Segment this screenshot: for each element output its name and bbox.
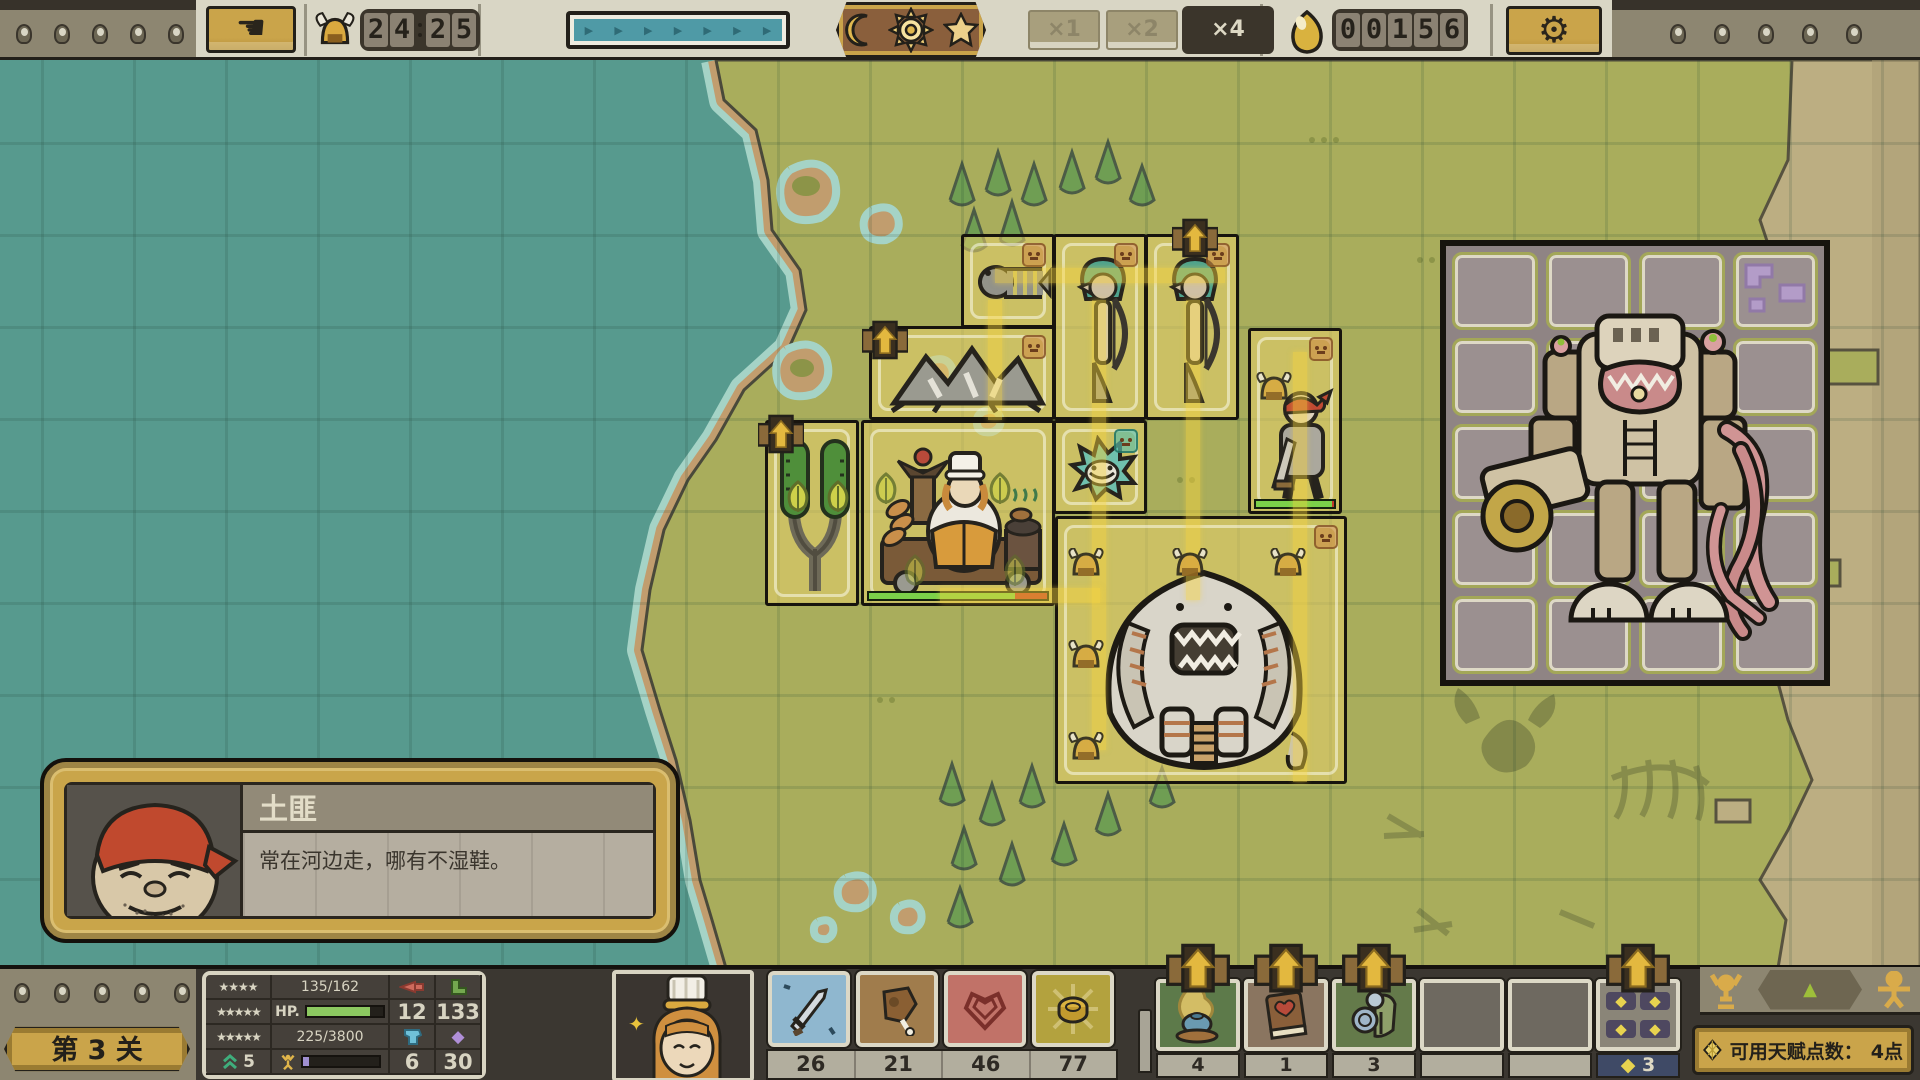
- upgrade-badge-button[interactable]: [1342, 941, 1406, 997]
- dialog-title: 土匪: [243, 785, 653, 833]
- pose-selector[interactable]: ▲: [1758, 970, 1862, 1010]
- resource-count: 77: [1031, 1051, 1117, 1078]
- hp-label: HP.: [275, 1004, 300, 1020]
- helmet-marker-icon: [1268, 548, 1308, 582]
- item-count: [1508, 1053, 1592, 1078]
- star-rating-row2: ★★★★★: [206, 1000, 272, 1025]
- timer-colon: [416, 13, 424, 47]
- helmet-marker-icon: [1170, 548, 1210, 582]
- gold-counter: 0 0 1 5 6: [1332, 9, 1468, 51]
- sword-icon: [782, 982, 836, 1036]
- scrap-mech-unit[interactable]: [1475, 290, 1805, 670]
- top-left-cap: [0, 0, 196, 60]
- heart-icon: [958, 982, 1012, 1036]
- resource-count: 26: [768, 1051, 856, 1078]
- timer-digit: 2: [426, 13, 450, 47]
- resource-count: 46: [943, 1051, 1031, 1078]
- pointer-tool-button[interactable]: ☚: [206, 6, 296, 53]
- wave-progress-bar: ▶▶▶▶▶▶▶: [566, 11, 790, 49]
- sparkle-icon: ✦: [628, 1012, 645, 1036]
- timer-digit: 5: [452, 13, 476, 47]
- resource-heart[interactable]: [944, 971, 1026, 1047]
- item-slot-empty[interactable]: [1420, 979, 1504, 1051]
- upgrade-badge-button[interactable]: [1606, 941, 1670, 997]
- leaf-badge-icon: [983, 470, 1017, 508]
- moon-icon: [843, 12, 879, 48]
- figure-arms-up-icon: [1706, 971, 1746, 1009]
- talent-points-label: 可用天赋点数：: [1730, 1037, 1863, 1064]
- gem-icon: ◆: [436, 1025, 482, 1050]
- xp-meter: [301, 1055, 381, 1068]
- item-count-diamond: ◆ 3: [1596, 1053, 1680, 1078]
- meat-icon: [870, 982, 924, 1036]
- hand-pointer-icon: ☚: [236, 8, 266, 48]
- upgrade-arrow-badge: [758, 412, 804, 456]
- pose-emblem-band: ▲: [1700, 967, 1920, 1015]
- leaf-badge-icon: [781, 478, 815, 516]
- leaf-badge-icon: [898, 552, 932, 590]
- xp-value: 225/3800: [272, 1025, 390, 1050]
- attack-beam: [988, 300, 1002, 420]
- enemy-face-icon: [1314, 525, 1338, 549]
- enemy-face-icon: [1022, 243, 1046, 267]
- armor-value: 6: [390, 1050, 436, 1075]
- diamond-cell-icon: ◆: [1640, 1020, 1670, 1038]
- star-rating-row3: ★★★★★: [206, 1025, 272, 1050]
- item-count: [1420, 1053, 1504, 1078]
- attack-beam: [1092, 300, 1106, 750]
- gear-icon: ⚙: [1538, 10, 1570, 51]
- upgrade-badge-button[interactable]: [1254, 941, 1318, 997]
- viking-helmet-icon: [314, 12, 356, 50]
- wave-arrows: ▶▶▶▶▶▶▶: [574, 19, 782, 41]
- settings-button[interactable]: ⚙: [1506, 6, 1602, 55]
- hp-value: 135/162: [272, 975, 390, 1000]
- diamond-cell-icon: ◆: [1606, 1020, 1636, 1038]
- helmet-marker-icon: [1254, 372, 1294, 406]
- gold-digit: 0: [1336, 13, 1360, 47]
- leaf-badge-icon: [998, 552, 1032, 590]
- item-count: 1: [1244, 1053, 1328, 1078]
- attack-value: 12: [390, 1000, 436, 1025]
- attack-icon: [390, 975, 436, 1000]
- enemy-info-dialog: 土匪 常在河边走，哪有不湿鞋。: [40, 758, 680, 943]
- helmet-marker-icon: [1066, 640, 1106, 674]
- bandit-portrait-art: [67, 785, 243, 916]
- resource-count: 21: [856, 1051, 944, 1078]
- upgrade-arrow-badge: [862, 318, 908, 362]
- gem-value: 30: [436, 1050, 482, 1075]
- resource-sword[interactable]: [768, 971, 850, 1047]
- hp-meter: [305, 1005, 385, 1018]
- speed-x1-button[interactable]: ×1: [1028, 10, 1100, 50]
- speed-x2-button[interactable]: ×2: [1106, 10, 1178, 50]
- armor-icon: [390, 1025, 436, 1050]
- day-night-emblem: [836, 2, 986, 58]
- figure-standing-icon: [1874, 971, 1914, 1009]
- diamond-icon: ◆: [1621, 1054, 1636, 1076]
- level-banner: 第 3 关: [4, 1025, 190, 1073]
- talent-points-banner[interactable]: 可用天赋点数： 4点: [1692, 1025, 1914, 1075]
- game-screen: 土匪 常在河边走，哪有不湿鞋。 ☚ 2 4 2 5 ▶▶▶▶▶: [0, 0, 1920, 1080]
- upgrade-arrow-badge: [1172, 216, 1218, 260]
- gold-nugget-icon: [1288, 10, 1326, 54]
- talent-points-value: 4点: [1871, 1037, 1903, 1064]
- hero-stats-panel: ★★★★ 135/162 ★★★★★ HP. 12 133 ★★★★★ 225/…: [202, 971, 486, 1079]
- leaf-badge-icon: [821, 478, 855, 516]
- speed-value: 133: [436, 1000, 482, 1025]
- wave-timer: 2 4 2 5: [360, 9, 480, 51]
- resource-meat[interactable]: [856, 971, 938, 1047]
- coin-icon: [1046, 982, 1100, 1036]
- ally-face-icon: [1114, 429, 1138, 453]
- attack-beam: [940, 588, 1100, 603]
- hp-bar-cell: HP.: [272, 1000, 390, 1025]
- leaf-badge-icon: [869, 470, 903, 508]
- rank-cell: 5: [206, 1050, 272, 1075]
- rank-chevron-icon: [221, 1053, 239, 1071]
- gold-digit: 1: [1388, 13, 1412, 47]
- enemy-face-icon: [1022, 335, 1046, 359]
- person-icon: [280, 1054, 296, 1070]
- helmet-marker-icon: [1066, 732, 1106, 766]
- rank-value: 5: [243, 1052, 255, 1072]
- dialog-description: 常在河边走，哪有不湿鞋。: [243, 833, 653, 916]
- bandit-portrait: [67, 785, 243, 916]
- attack-beam: [995, 268, 1225, 283]
- timer-digit: 2: [364, 13, 388, 47]
- triangle-up-icon: ▲: [1803, 979, 1817, 1000]
- item-slot-empty[interactable]: [1508, 979, 1592, 1051]
- item-count: 4: [1156, 1053, 1240, 1078]
- resource-counts: 26 21 46 77: [766, 1049, 1118, 1080]
- helmet-marker-icon: [1066, 548, 1106, 582]
- talent-gem-icon: [1703, 1033, 1722, 1067]
- star-icon: [943, 12, 979, 48]
- gold-digit: 0: [1362, 13, 1386, 47]
- top-right-cap: [1612, 0, 1920, 60]
- enemy-face-icon: [1309, 337, 1333, 361]
- top-hud: ☚ 2 4 2 5 ▶▶▶▶▶▶▶ ×1 ×2 ×4 0 0 1 5: [0, 0, 1920, 60]
- sun-icon: [888, 7, 934, 53]
- resource-coin[interactable]: [1032, 971, 1114, 1047]
- boot-icon: [436, 975, 482, 1000]
- upgrade-badge-button[interactable]: [1166, 941, 1230, 997]
- speed-x4-button[interactable]: ×4: [1182, 6, 1274, 54]
- gold-digit: 6: [1440, 13, 1464, 47]
- enemy-face-icon: [1114, 243, 1138, 267]
- xp-bar-cell: [272, 1050, 390, 1075]
- hero-avatar[interactable]: ✦: [612, 970, 754, 1080]
- timer-digit: 4: [390, 13, 414, 47]
- bottom-hud: 第 3 关 ★★★★ 135/162 ★★★★★ HP. 12 133 ★★★★…: [0, 965, 1920, 1080]
- star-rating-row1: ★★★★: [206, 975, 272, 1000]
- item-count: 3: [1332, 1053, 1416, 1078]
- gold-digit: 5: [1414, 13, 1438, 47]
